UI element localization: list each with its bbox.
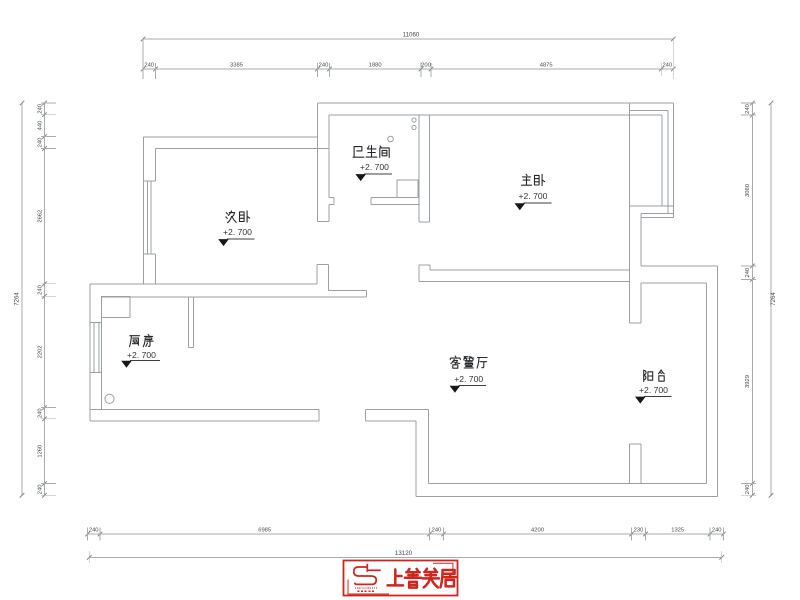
svg-text:240: 240 (38, 485, 44, 495)
svg-text:+2. 700: +2. 700 (454, 374, 483, 384)
svg-text:3929: 3929 (745, 375, 751, 388)
svg-text:240: 240 (745, 485, 751, 495)
svg-text:+2. 700: +2. 700 (360, 162, 389, 172)
svg-text:+2. 700: +2. 700 (639, 385, 668, 395)
svg-text:2202: 2202 (38, 345, 44, 358)
svg-text:240: 240 (89, 528, 99, 534)
svg-text:240: 240 (38, 104, 44, 114)
svg-text:6985: 6985 (258, 528, 271, 534)
svg-text:240: 240 (432, 528, 442, 534)
svg-text:240: 240 (662, 63, 672, 69)
svg-text:1325: 1325 (671, 528, 684, 534)
svg-text:3060: 3060 (745, 184, 751, 197)
svg-text:3385: 3385 (230, 63, 243, 69)
svg-text:230: 230 (634, 528, 644, 534)
svg-text:2662: 2662 (38, 210, 44, 223)
svg-text:240: 240 (144, 63, 154, 69)
svg-text:7264: 7264 (14, 292, 21, 306)
svg-text:240: 240 (745, 104, 751, 114)
svg-text:200: 200 (421, 63, 431, 69)
svg-text:440: 440 (38, 121, 44, 131)
svg-text:13120: 13120 (395, 550, 413, 557)
svg-text:7264: 7264 (770, 292, 777, 306)
svg-text:1260: 1260 (38, 445, 44, 458)
svg-text:+2. 700: +2. 700 (223, 227, 252, 237)
svg-text:240: 240 (319, 63, 329, 69)
svg-text:11060: 11060 (403, 32, 420, 39)
svg-text:240: 240 (38, 138, 44, 148)
svg-text:1880: 1880 (369, 63, 382, 69)
svg-text:240: 240 (745, 268, 751, 278)
svg-text:240: 240 (712, 528, 722, 534)
svg-text:4200: 4200 (531, 528, 544, 534)
svg-text:240: 240 (38, 408, 44, 418)
svg-text:+2. 700: +2. 700 (519, 191, 548, 201)
svg-text:4875: 4875 (540, 63, 553, 69)
svg-text:+2. 700: +2. 700 (127, 350, 156, 360)
svg-text:240: 240 (38, 285, 44, 295)
